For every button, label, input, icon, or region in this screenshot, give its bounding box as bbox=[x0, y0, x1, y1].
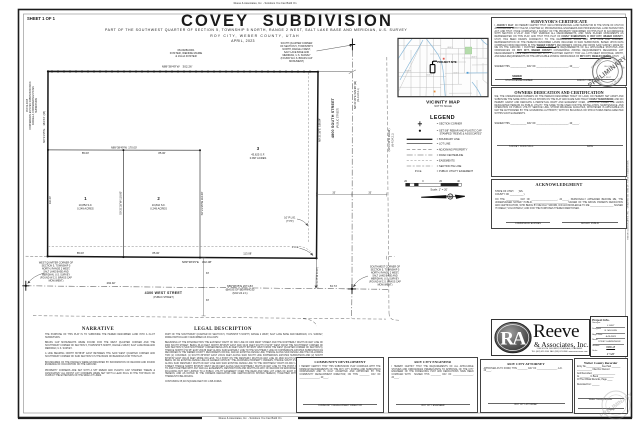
svg-text:33': 33' bbox=[332, 191, 336, 194]
svg-text:S0°21'35"W 110.00': S0°21'35"W 110.00' bbox=[200, 191, 204, 215]
svg-text:N0°21'35"E 186.84': N0°21'35"E 186.84' bbox=[317, 118, 321, 142]
svg-text:113.08': 113.08' bbox=[243, 252, 252, 256]
svg-text:0: 0 bbox=[422, 180, 424, 183]
svg-text:KOPPERDAHL ESTATES SUBDIVISION: KOPPERDAHL ESTATES SUBDIVISION NO.4 bbox=[29, 81, 32, 130]
svg-text:(TYP.): (TYP.) bbox=[286, 219, 294, 223]
svg-text:MONUMENT): MONUMENT) bbox=[378, 283, 393, 286]
svg-text:= SECTION CORNER: = SECTION CORNER bbox=[437, 122, 462, 126]
svg-text:43,625 S.F.: 43,625 S.F. bbox=[251, 152, 265, 156]
svg-text:MONUMENT): MONUMENT) bbox=[49, 279, 64, 282]
svg-text:S0°21'35"W 110.00': S0°21'35"W 110.00' bbox=[118, 191, 122, 215]
svg-text:LEGEND: LEGEND bbox=[430, 115, 455, 121]
svg-text:63.74': 63.74' bbox=[330, 284, 338, 288]
svg-text:3: 3 bbox=[257, 146, 260, 151]
svg-text:= EASEMENTS: = EASEMENTS bbox=[437, 158, 455, 162]
svg-text:SUBDIVISION: SUBDIVISION bbox=[36, 98, 38, 113]
svg-text:Scale: 1" = 20': Scale: 1" = 20' bbox=[430, 187, 448, 191]
svg-text:33': 33' bbox=[206, 272, 210, 275]
svg-text:= LOT LINE: = LOT LINE bbox=[437, 141, 451, 145]
svg-text:(PUBLIC STREET): (PUBLIC STREET) bbox=[337, 108, 340, 129]
svg-text:N0°21'35"E 529.96' (M): N0°21'35"E 529.96' (M) bbox=[353, 81, 357, 109]
svg-text:292.92': 292.92' bbox=[107, 281, 116, 285]
svg-text:N0°21'35"E 184.53' (M): N0°21'35"E 184.53' (M) bbox=[42, 111, 46, 143]
svg-text:10,842 S.F.: 10,842 S.F. bbox=[152, 203, 166, 207]
svg-text:85.00': 85.00' bbox=[77, 251, 85, 255]
svg-text:85.00': 85.00' bbox=[152, 251, 160, 255]
svg-text:= ADJOINING PROPERTY: = ADJOINING PROPERTY bbox=[437, 148, 468, 152]
svg-text:08-679-0008: 08-679-0008 bbox=[27, 98, 29, 112]
svg-text:1: 1 bbox=[84, 196, 87, 201]
svg-text:P.U.E.: P.U.E. bbox=[292, 245, 300, 249]
svg-text:4800 S: 4800 S bbox=[447, 47, 453, 49]
svg-text:85.00': 85.00' bbox=[158, 151, 166, 155]
svg-text:0.249 ACRES: 0.249 ACRES bbox=[150, 206, 167, 210]
svg-text:PARCEL A, KOPPERDAHL ESTATES: PARCEL A, KOPPERDAHL ESTATES bbox=[32, 86, 35, 125]
svg-text:5200 S: 5200 S bbox=[453, 73, 459, 75]
svg-text:2: 2 bbox=[157, 196, 160, 201]
svg-text:33': 33' bbox=[368, 191, 372, 194]
svg-text:N89°38'49"W 170.00': N89°38'49"W 170.00' bbox=[111, 146, 138, 150]
svg-text:(M-R 24.2.1): (M-R 24.2.1) bbox=[232, 291, 247, 295]
svg-text:(M-R 24.2.1): (M-R 24.2.1) bbox=[357, 88, 360, 102]
svg-text:4300 WEST STREET: 4300 WEST STREET bbox=[145, 291, 183, 295]
svg-text:5100 S: 5100 S bbox=[426, 75, 432, 77]
svg-text:110.00': 110.00' bbox=[49, 196, 52, 204]
svg-text:(M-R 24.2.1): (M-R 24.2.1) bbox=[391, 133, 394, 147]
svg-text:(BASIS OF BEARINGS): (BASIS OF BEARINGS) bbox=[226, 288, 255, 292]
svg-text:= SECTION TIE LINE: = SECTION TIE LINE bbox=[437, 164, 462, 168]
svg-text:40: 40 bbox=[457, 180, 460, 183]
svg-text:10,852 S.F.: 10,852 S.F. bbox=[79, 203, 93, 207]
svg-text:& JULIA FOSTER: & JULIA FOSTER bbox=[175, 54, 196, 58]
svg-text:N89°38'25"E 2671.84': N89°38'25"E 2671.84' bbox=[227, 284, 254, 288]
svg-text:= ROAD CENTERLINE: = ROAD CENTERLINE bbox=[437, 153, 464, 157]
svg-text:20: 20 bbox=[439, 180, 442, 183]
svg-text:NOT TO SCALE: NOT TO SCALE bbox=[434, 105, 452, 108]
svg-text:4800 SOUTH STREET: 4800 SOUTH STREET bbox=[331, 97, 335, 138]
svg-text:20: 20 bbox=[404, 180, 407, 183]
svg-text:PROJECT SITE: PROJECT SITE bbox=[437, 60, 457, 64]
svg-text:85.00': 85.00' bbox=[82, 151, 90, 155]
svg-text:MONUMENT): MONUMENT) bbox=[289, 60, 304, 63]
svg-text:STAMPED "REEVE & ASSOCIATES": STAMPED "REEVE & ASSOCIATES" bbox=[440, 131, 482, 135]
svg-text:N89°38'49"W 302.26': N89°38'49"W 302.26' bbox=[162, 64, 193, 68]
svg-text:RA: RA bbox=[500, 328, 526, 349]
svg-text:(S0°21'35"W 30.00'): (S0°21'35"W 30.00') bbox=[317, 267, 319, 288]
svg-text:N89°38'25"E 302.08': N89°38'25"E 302.08' bbox=[182, 260, 212, 264]
svg-text:4600 S: 4600 S bbox=[471, 57, 477, 59]
svg-text:VICINITY MAP: VICINITY MAP bbox=[426, 99, 460, 104]
svg-text:P.U.E.: P.U.E. bbox=[415, 169, 422, 173]
svg-text:= BOUNDARY LINE: = BOUNDARY LINE bbox=[437, 137, 460, 141]
svg-text:(PUBLIC STREET): (PUBLIC STREET) bbox=[153, 296, 174, 299]
svg-text:0.249 ACRES: 0.249 ACRES bbox=[77, 206, 94, 210]
svg-text:0.997 ACRES: 0.997 ACRES bbox=[250, 156, 267, 160]
svg-text:33': 33' bbox=[206, 299, 210, 302]
svg-text:3500 W: 3500 W bbox=[405, 71, 411, 73]
svg-text:= PUBLIC UTILITY EASEMENT: = PUBLIC UTILITY EASEMENT bbox=[437, 169, 474, 173]
